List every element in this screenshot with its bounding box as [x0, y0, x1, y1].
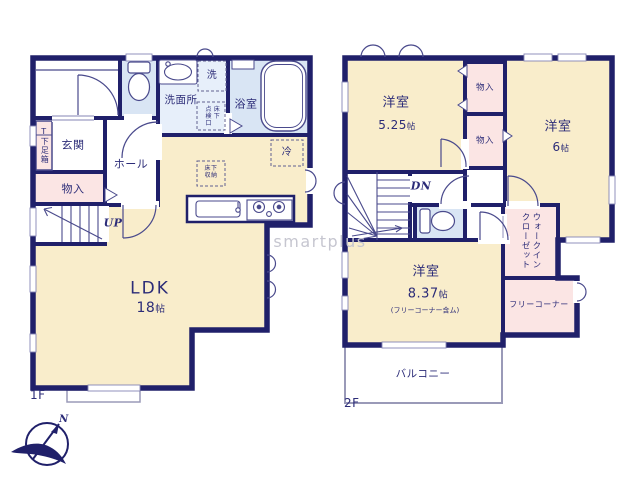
- label-bedroom3-size-unit: 帖: [439, 290, 449, 300]
- label-free-corner: フリーコーナー: [509, 301, 569, 309]
- label-closet2: 物入: [476, 137, 494, 146]
- toilet-icon-2f: [420, 209, 455, 233]
- label-bedroom3-size: 8.37帖: [408, 287, 449, 300]
- label-compass-north: N: [59, 415, 69, 425]
- label-bedroom3: 洋室: [412, 266, 439, 279]
- compass-icon: [11, 423, 68, 465]
- label-bedroom2-size-unit: 帖: [561, 143, 570, 153]
- label-shoe-box-text: 下足箱: [40, 137, 48, 164]
- label-bedroom3-note: (フリーコーナー含ム): [391, 308, 459, 315]
- label-shoe-box: T 下足箱: [40, 128, 48, 164]
- hall-cell2-2f: [465, 205, 505, 240]
- label-wic-line1: ウォークイン: [531, 213, 540, 270]
- label-underfloor-line2: 収納: [204, 173, 217, 180]
- label-bedroom1-size-num: 5.25: [378, 118, 407, 132]
- label-bedroom1-size: 5.25帖: [378, 119, 416, 131]
- label-floor2: 2F: [344, 397, 360, 409]
- label-bedroom3-size-num: 8.37: [408, 286, 439, 301]
- label-balcony: バルコニー: [396, 369, 451, 380]
- terrace-step: [67, 390, 140, 402]
- label-stairs-up: UP: [104, 218, 123, 229]
- stove-icon: [247, 200, 292, 220]
- label-underfloor-storage: 床下 収納: [204, 166, 217, 180]
- label-ldk-size-num: 18: [136, 300, 155, 316]
- room-stairs-1f: [33, 204, 105, 244]
- label-closet1: 物入: [476, 84, 494, 93]
- toilet-icon-1f: [128, 62, 150, 101]
- label-bedroom1: 洋室: [382, 97, 409, 110]
- floor-plan-canvas: 玄関 ホール T 下足箱 物入 UP 洗面所 洗 床下 点検口 浴室 冷 床下 …: [0, 0, 640, 480]
- label-storage-1f: 物入: [62, 184, 85, 195]
- label-ldk: LDK: [130, 281, 170, 298]
- label-wic: ウォークイン クローゼット: [520, 213, 540, 270]
- label-genkan: 玄関: [62, 140, 85, 151]
- label-washer: 洗: [207, 71, 218, 81]
- label-ldk-size: 18帖: [136, 301, 165, 315]
- label-inspection-left: 点検口: [204, 106, 210, 127]
- label-wic-line2: クローゼット: [520, 213, 529, 270]
- kitchen-counter: [187, 196, 294, 222]
- watermark: smartplus: [273, 234, 366, 250]
- label-bedroom2: 洋室: [544, 121, 571, 134]
- sink-icon: [196, 201, 240, 217]
- label-inspection: 床下 点検口: [204, 106, 219, 127]
- label-floor1: 1F: [30, 389, 46, 401]
- label-shoe-box-t: T: [41, 128, 46, 136]
- label-stairs-down: DN: [411, 181, 432, 192]
- label-inspection-right: 床下: [212, 106, 218, 127]
- label-bedroom2-size: 6帖: [552, 141, 569, 153]
- label-fridge: 冷: [282, 148, 293, 158]
- label-hall-1f: ホール: [114, 159, 149, 170]
- label-washroom: 洗面所: [165, 95, 198, 106]
- washbasin-icon: [159, 60, 197, 84]
- label-bathroom: 浴室: [235, 99, 258, 110]
- label-ldk-size-unit: 帖: [155, 304, 165, 315]
- label-bedroom1-size-unit: 帖: [407, 121, 416, 131]
- hall-cell-2f: [465, 168, 505, 205]
- label-bedroom2-size-num: 6: [552, 140, 560, 154]
